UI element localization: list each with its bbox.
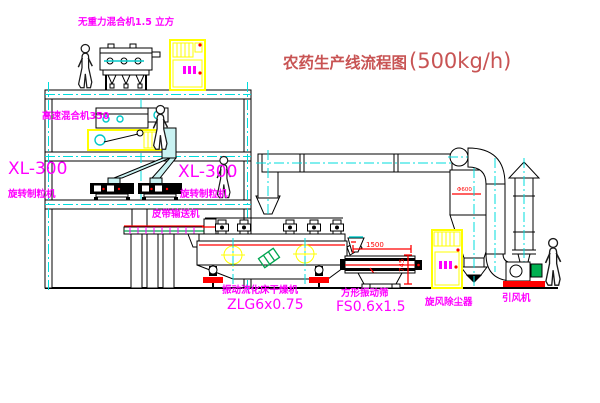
label-granulator-right-model: XL-300 <box>178 162 237 182</box>
label-dryer: 振动流化床干燥机 <box>222 284 299 296</box>
cyclone-diameter-label: Φ600 <box>457 187 472 193</box>
control-cabinet-ground <box>432 230 462 288</box>
label-screen: 方形振动筛 <box>341 287 389 299</box>
svg-text:1500: 1500 <box>366 241 384 249</box>
induced-draft-fan <box>503 262 545 287</box>
label-granulator-left-type: 旋转制粒机 <box>7 188 56 200</box>
diagram-svg: Φ600 <box>0 0 600 403</box>
cabinet-knobs <box>183 66 186 74</box>
label-dryer-model: ZLG6x0.75 <box>227 297 304 313</box>
fan-base <box>503 281 545 287</box>
indicator-dot <box>198 43 201 46</box>
discharge-chute <box>132 209 147 226</box>
label-cyclone: 旋风除尘器 <box>424 296 473 308</box>
fan-motor <box>531 264 542 277</box>
control-cabinet-roof <box>170 40 205 90</box>
cabinet-knobs <box>439 261 442 269</box>
label-granulator-right-type: 旋转制粒机 <box>179 188 228 200</box>
cad-flow-diagram: Φ600 <box>0 0 600 403</box>
svg-text:745: 745 <box>398 259 406 272</box>
label-gravity-mixer: 无重力混合机1.5 立方 <box>77 16 175 28</box>
label-granulator-left-model: XL-300 <box>8 159 67 179</box>
label-screen-model: FS0.6x1.5 <box>336 299 406 315</box>
label-belt-conveyor: 皮带输送机 <box>151 208 200 220</box>
label-high-speed-mixer: 高速混合机350 <box>42 110 110 122</box>
label-fan: 引风机 <box>502 292 531 304</box>
